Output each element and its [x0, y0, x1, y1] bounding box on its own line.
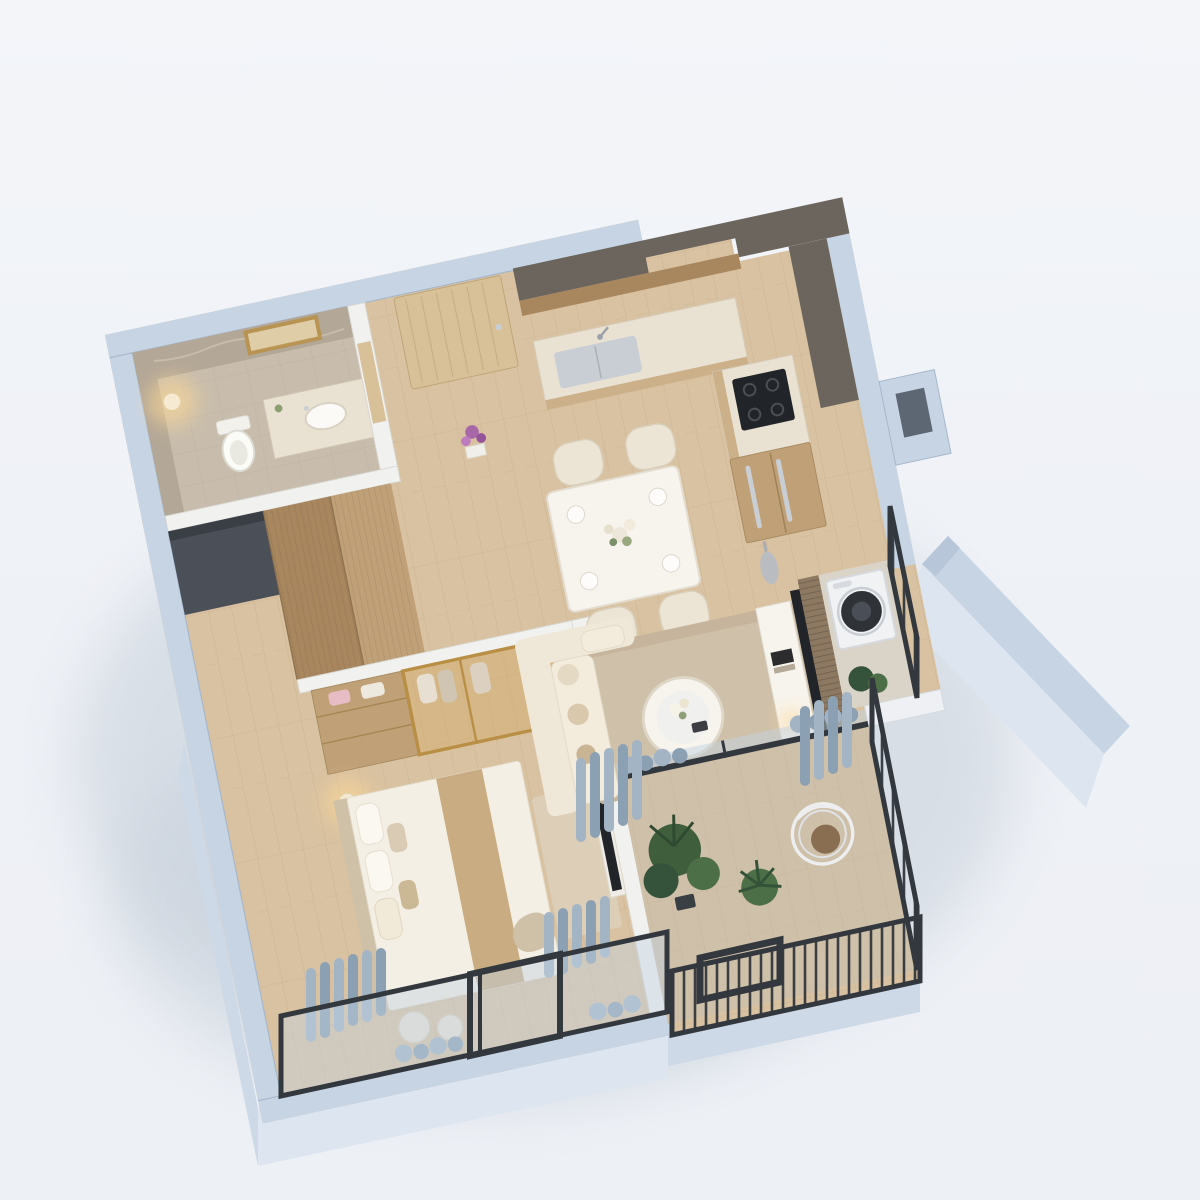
render-stage	[0, 0, 1200, 1200]
fridge	[730, 442, 827, 543]
washing-machine	[826, 569, 897, 650]
kitchen-right-arm	[712, 355, 809, 460]
floorplan-render	[0, 0, 1200, 1200]
